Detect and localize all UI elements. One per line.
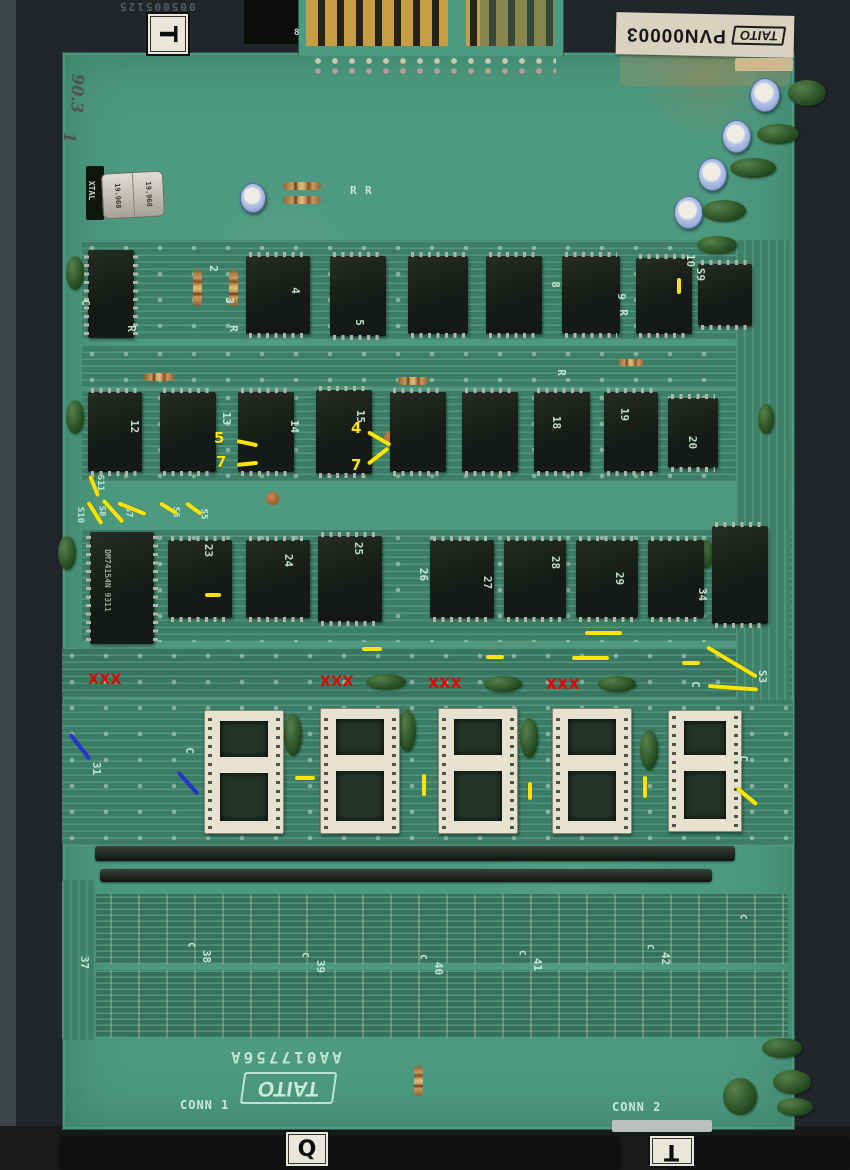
board-notch: [244, 0, 298, 44]
green-cap: [484, 676, 522, 692]
dm74154n-line1: DM74154N: [103, 549, 112, 588]
crystal-half-left: 19.968: [102, 173, 135, 219]
green-cap: [788, 80, 826, 106]
dip-ic: [246, 540, 310, 618]
handwritten-note: 90.3: [67, 74, 87, 114]
finger-oxidized-patch: [480, 0, 554, 46]
resistor: [414, 1066, 423, 1096]
ic-socket: [438, 708, 518, 834]
silk-ref: 8: [549, 281, 562, 288]
annotation-line: [585, 631, 622, 635]
corner-marker-br-glyph: T: [664, 1139, 679, 1164]
corner-marker-bl-glyph: Q: [298, 1137, 317, 1162]
dip-ic: [668, 398, 718, 468]
dip-ic: [604, 392, 658, 472]
crystal-freq-left: 19.968: [113, 183, 122, 209]
silk-jumper: S10: [75, 507, 85, 523]
green-cap: [730, 158, 776, 178]
dip-ic: [238, 392, 294, 472]
dip-ic: [462, 392, 518, 472]
green-cap: [702, 200, 746, 222]
sticker-content: TAITO PVN00003: [625, 22, 784, 47]
annotation-line: [572, 656, 609, 660]
silk-ref-c: C: [79, 299, 92, 306]
ic-socket: [668, 710, 742, 832]
annotation-xxx: XXX: [546, 677, 580, 693]
crystal-19968: 19.968 19.968: [101, 170, 165, 219]
annotation-line: [528, 782, 532, 800]
trace-zone-bottom2: [82, 970, 788, 1038]
resistor: [144, 373, 174, 381]
green-cap: [398, 710, 416, 752]
socket-opening: [220, 721, 268, 757]
silk-ref: 13: [220, 412, 233, 425]
annotation-number: 7: [351, 456, 361, 474]
connector-strip: [100, 869, 712, 882]
xtal-silk: XTAL: [87, 181, 96, 200]
ic-socket: [320, 708, 400, 834]
bottom-connector-housing: [60, 1136, 620, 1170]
dip-ic: [390, 392, 446, 472]
silk-ref: 38: [200, 950, 213, 963]
crystal-freq-right: 19.968: [144, 181, 153, 207]
electrolytic-cap: [722, 120, 751, 153]
green-cap: [366, 674, 406, 690]
dip-ic: [408, 256, 468, 334]
bottom-part-number: AA017756A: [228, 1048, 342, 1067]
annotation-line: [682, 661, 700, 665]
silk-ref: 26: [417, 568, 430, 581]
annotation-line: [677, 278, 681, 294]
part-number: PVN00003: [625, 22, 725, 46]
socket-opening: [454, 719, 502, 755]
silk-ref: 37: [78, 956, 91, 969]
green-cap: [66, 256, 84, 290]
silk-jumper-s9: S9: [694, 268, 707, 281]
silk-ref-c: C: [737, 755, 750, 762]
socket-opening: [684, 721, 726, 755]
taito-logo: TAITO: [731, 26, 786, 46]
silk-ref: 31: [90, 762, 103, 775]
annotation-xxx: XXX: [428, 676, 462, 692]
green-cap: [758, 404, 774, 434]
socket-opening: [220, 773, 268, 821]
silk-ref-r: R: [365, 184, 372, 197]
green-cap: [723, 1078, 757, 1115]
dip-ic: [648, 540, 704, 618]
corner-marker-bottom-right: T: [648, 1134, 696, 1168]
taito-part-sticker: TAITO PVN00003: [616, 12, 795, 58]
dip-ic: [246, 256, 310, 334]
resistor: [283, 182, 321, 190]
silk-ref: 41: [531, 958, 544, 971]
green-cap: [284, 714, 302, 756]
resistor: [283, 196, 321, 204]
annotation-line: [295, 776, 315, 780]
ic-socket: [552, 708, 632, 834]
silk-ref-c: C: [186, 942, 196, 947]
finger-key-slot: [448, 0, 466, 46]
small-label-scrap: [735, 58, 793, 71]
silk-ref-r: R: [350, 184, 357, 197]
dip-ic: [504, 540, 566, 618]
ic-socket: [204, 710, 284, 834]
silk-ref: 39: [314, 960, 327, 973]
socket-opening: [568, 719, 616, 755]
silk-ref-c: C: [418, 954, 428, 959]
silk-ref: 5: [353, 319, 366, 326]
green-cap: [520, 718, 538, 758]
trace-zone-mid1: [82, 346, 790, 388]
socket-opening: [568, 771, 616, 821]
green-cap: [757, 124, 799, 144]
green-cap: [598, 676, 636, 692]
electrolytic-cap: [240, 183, 266, 213]
silk-ref: 4: [289, 287, 302, 294]
resistor: [618, 359, 644, 366]
corner-marker-top: T: [146, 12, 190, 56]
dip-ic: [576, 540, 638, 618]
electrolytic-cap: [750, 78, 780, 112]
silk-ref: 25: [352, 542, 365, 555]
electrolytic-cap: [674, 196, 703, 229]
green-cap: [58, 536, 76, 570]
dip-ic: [160, 392, 216, 472]
conn1-label: CONN 1: [180, 1098, 229, 1112]
silk-ref: 2: [207, 265, 220, 272]
annotation-number: 5: [214, 429, 224, 447]
electrolytic-cap: [698, 158, 727, 191]
silk-ref: 24: [282, 554, 295, 567]
socket-opening: [336, 719, 384, 755]
disc-capacitor: [266, 492, 279, 505]
annotation-line: [643, 776, 647, 798]
handwritten-mark: 1: [60, 132, 79, 144]
silk-ref: 23: [202, 544, 215, 557]
dip-ic-dm74154n: [90, 532, 154, 644]
dip-ic: [316, 390, 372, 474]
annotation-line: [422, 774, 426, 796]
green-cap: [773, 1070, 811, 1094]
annotation-number: 4: [351, 419, 361, 437]
green-cap: [66, 400, 84, 434]
socket-opening: [684, 771, 726, 819]
dm74154n-text: DM74154N 9311: [103, 549, 112, 612]
green-cap: [640, 730, 658, 770]
dip-ic: [712, 526, 768, 624]
green-cap: [697, 236, 737, 254]
silk-ref-c: C: [517, 950, 527, 955]
socket-opening: [336, 771, 384, 821]
silk-ref: 27: [481, 576, 494, 589]
silk-ref: 18: [550, 416, 563, 429]
silk-ref: 20: [686, 436, 699, 449]
scan-edge-left: [0, 0, 16, 1170]
annotation-xxx: XXX: [88, 672, 122, 688]
silk-ref: 19: [618, 408, 631, 421]
silk-ref: 28: [549, 556, 562, 569]
annotation-line: [486, 655, 504, 659]
dip-ic: [534, 392, 590, 472]
green-cap: [777, 1098, 813, 1116]
dip-ic: [636, 258, 692, 334]
bottom-taito-logo: TAITO: [240, 1072, 338, 1104]
annotation-number: 7: [216, 453, 226, 471]
annotation-line: [205, 593, 221, 597]
trace-zone-xxx: [62, 648, 792, 698]
silk-ref: 29: [613, 572, 626, 585]
silk-ref: 3: [223, 297, 236, 304]
dip-ic: [318, 536, 382, 622]
pcb-photo: 005005125 T 90.3 1 TAITO PVN00003 8 XTAL…: [0, 0, 850, 1170]
silk-ref-c: C: [645, 944, 655, 949]
dip-ic: [486, 256, 542, 334]
silk-ref: 34: [696, 588, 709, 601]
corner-marker-top-glyph: T: [154, 26, 182, 42]
corner-marker-bottom-left: Q: [284, 1130, 330, 1168]
resistor: [398, 377, 428, 385]
silk-ref-r: R: [555, 369, 568, 376]
silk-ref-c: C: [738, 914, 748, 919]
silk-ref-c: C: [689, 681, 702, 688]
silk-ref: 14: [288, 420, 301, 433]
dip-ic: [168, 540, 232, 618]
conn2-label: CONN 2: [612, 1100, 661, 1114]
socket-opening: [454, 771, 502, 821]
silk-ref-r: R: [227, 325, 240, 332]
silk-ref-c: C: [183, 747, 196, 754]
tab-silk-8: 8: [294, 28, 299, 38]
dip-ic: [562, 256, 620, 334]
silk-ref: 10: [684, 254, 697, 267]
annotation-xxx: XXX: [320, 674, 354, 690]
silk-ref: 9: [615, 293, 628, 300]
crystal-half-right: 19.968: [132, 171, 164, 216]
silk-jumper-s3: S3: [756, 670, 769, 683]
connector-strip: [95, 846, 735, 861]
silk-ref-r: R: [125, 325, 138, 332]
trace-zone-bottom1: [82, 894, 788, 964]
resistor: [193, 270, 202, 306]
silk-ref: 42: [659, 952, 672, 965]
solder-pad-rows: [312, 56, 556, 78]
silk-ref: 12: [128, 420, 141, 433]
bottom-metal-bracket: [612, 1120, 712, 1132]
silk-ref-r: R: [617, 309, 630, 316]
green-cap: [762, 1038, 802, 1058]
silk-ref: 40: [432, 962, 445, 975]
silk-ref-c: C: [300, 952, 310, 957]
dm74154n-line2: 9311: [103, 593, 112, 612]
annotation-line: [362, 647, 382, 651]
